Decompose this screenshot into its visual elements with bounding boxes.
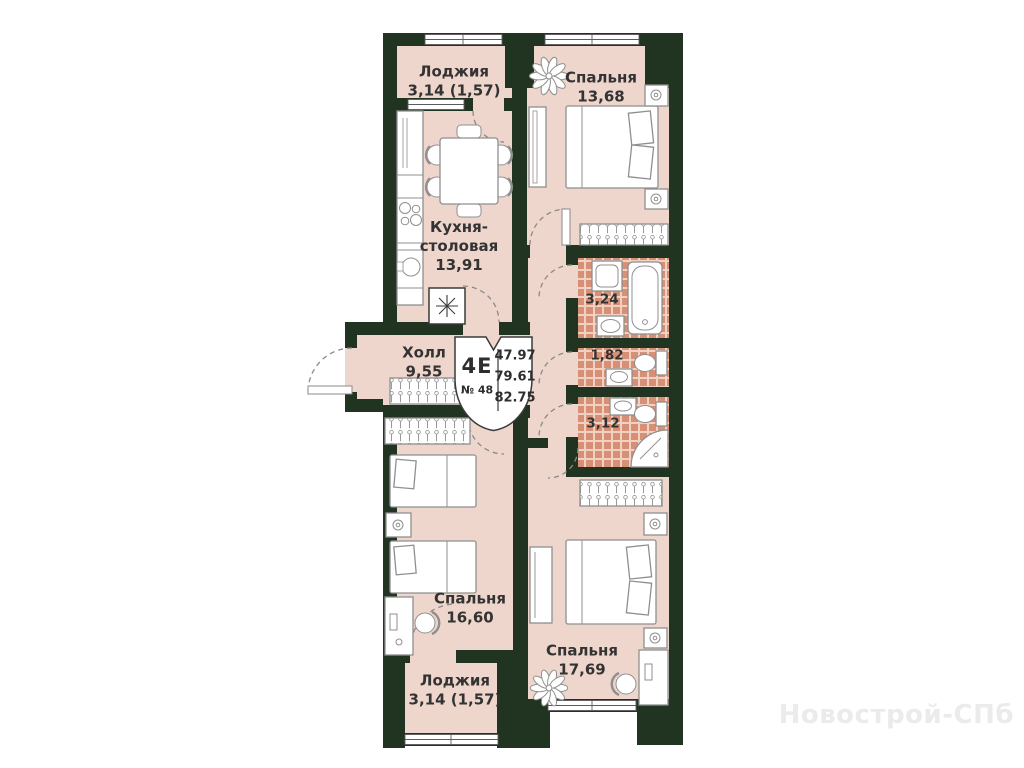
- room-label-bedroom-bottom: Спальня 17,69: [546, 641, 618, 679]
- double-bed-icon: [566, 106, 658, 188]
- watermark: Новострой-СПб: [779, 700, 1014, 730]
- room-label-bedroom-top: Спальня 13,68: [565, 68, 637, 106]
- sink-icon: [606, 369, 632, 386]
- desk-icon: [385, 597, 413, 655]
- room-label-hall: Холл 9,55: [402, 343, 446, 381]
- room-label-loggia-bottom: Лоджия 3,14 (1,57): [409, 671, 502, 709]
- room-area: 13,68: [565, 87, 637, 106]
- exterior-mask: [550, 712, 637, 746]
- single-bed-icon: [390, 455, 476, 507]
- room-area: 3,14 (1,57): [408, 81, 501, 100]
- nightstand-icon: [645, 85, 668, 106]
- cabinet-icon: [530, 547, 552, 623]
- room-area: 3,24: [585, 292, 618, 309]
- bedroom-top-door-leaf: [562, 209, 570, 245]
- room-label-shower-room: 3,12: [586, 416, 619, 433]
- wardrobe-icon: [580, 224, 668, 245]
- entrance-door-leaf: [308, 386, 352, 394]
- desk-icon: [639, 650, 668, 705]
- window-loggia-kitchen: [408, 100, 464, 110]
- room-label-kitchen: Кухня- столовая 13,91: [420, 218, 498, 274]
- room-area: 13,91: [420, 255, 498, 274]
- room-name: Лоджия: [408, 62, 501, 81]
- room-area: 1,82: [590, 348, 623, 365]
- room-area: 16,60: [434, 608, 506, 627]
- room-label-bedroom-left: Спальня 16,60: [434, 589, 506, 627]
- nightstand-icon: [644, 628, 667, 648]
- washing-machine-icon: [592, 261, 622, 291]
- vent-shaft-icon: [429, 288, 465, 324]
- room-name: столовая: [420, 237, 498, 256]
- room-label-bathroom: 3,24: [585, 292, 618, 309]
- sink-icon: [610, 398, 636, 415]
- nightstand-icon: [644, 513, 667, 535]
- room-label-loggia-top: Лоджия 3,14 (1,57): [408, 62, 501, 100]
- room-label-wc: 1,82: [590, 348, 623, 365]
- room-area: 9,55: [402, 362, 446, 381]
- room-name: Холл: [402, 343, 446, 362]
- window-bedroom-bottom: [548, 701, 636, 711]
- nightstand-icon: [645, 189, 668, 209]
- double-bed-icon: [566, 540, 656, 624]
- room-name: Спальня: [546, 641, 618, 660]
- unit-number: № 48: [461, 384, 493, 397]
- unit-area-1: 47.97: [494, 349, 535, 364]
- room-area: 3,14 (1,57): [409, 690, 502, 709]
- bathtub-icon: [628, 262, 662, 334]
- room-area: 3,12: [586, 416, 619, 433]
- window-loggia-top: [425, 35, 502, 45]
- wardrobe-icon: [580, 480, 662, 506]
- unit-area-2: 79.61: [494, 370, 535, 385]
- floorplan-canvas: Лоджия 3,14 (1,57) Спальня 13,68 Кухня- …: [0, 0, 1024, 768]
- room-area: 17,69: [546, 660, 618, 679]
- nightstand-icon: [386, 513, 411, 537]
- single-bed-icon: [390, 541, 476, 593]
- wardrobe-icon: [385, 418, 470, 444]
- room-name: Спальня: [565, 68, 637, 87]
- room-name: Кухня-: [420, 218, 498, 237]
- kitchen-counter-icon: [397, 111, 423, 305]
- unit-area-3: 82.75: [494, 391, 535, 406]
- dresser-icon: [529, 107, 546, 187]
- room-name: Лоджия: [409, 671, 502, 690]
- unit-type: 4Е: [462, 354, 493, 378]
- room-name: Спальня: [434, 589, 506, 608]
- window-bedroom-top: [545, 35, 639, 45]
- sink-icon: [597, 316, 624, 336]
- window-loggia-bottom: [405, 735, 498, 745]
